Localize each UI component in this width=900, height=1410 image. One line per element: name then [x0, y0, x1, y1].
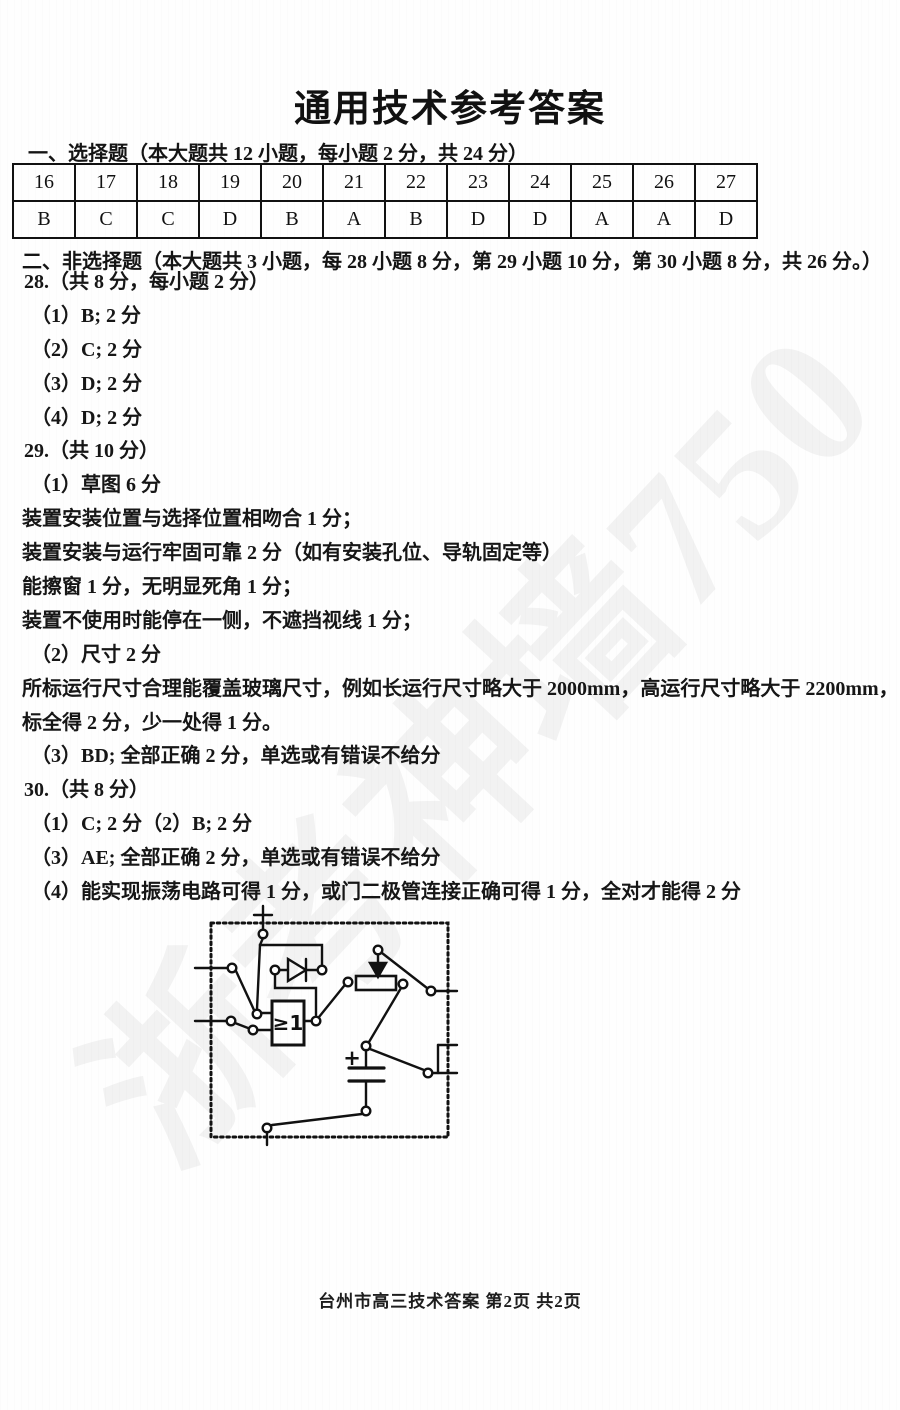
- wire-pot-to-cap: [369, 988, 401, 1042]
- table-answer-cell: C: [137, 201, 199, 238]
- q29-note: 装置不使用时能停在一侧，不遮挡视线 1 分；: [22, 605, 878, 639]
- wire-or-to-pot: [319, 986, 344, 1017]
- table-answer-cell: D: [447, 201, 509, 238]
- table-row-answers: B C C D B A B D D A A D: [13, 201, 757, 238]
- table-answer-cell: D: [199, 201, 261, 238]
- answer-table: 16 17 18 19 20 21 22 23 24 25 26 27 B C …: [12, 163, 758, 239]
- section1-heading: 一、选择题（本大题共 12 小题，每小题 2 分，共 24 分）: [28, 137, 528, 166]
- diode-icon: [271, 959, 327, 1015]
- q29-note: 能擦窗 1 分，无明显死角 1 分；: [22, 571, 878, 605]
- feedback-wire: [257, 945, 322, 1009]
- q29-item: （3）BD; 全部正确 2 分，单选或有错误不给分: [22, 740, 878, 774]
- q28-item: （2）C; 2 分: [22, 334, 878, 368]
- table-answer-cell: A: [633, 201, 695, 238]
- table-number-cell: 26: [633, 164, 695, 201]
- q28-item: （1）B; 2 分: [22, 300, 878, 334]
- table-answer-cell: D: [509, 201, 571, 238]
- table-number-cell: 19: [199, 164, 261, 201]
- table-answer-cell: B: [13, 201, 75, 238]
- circuit-diagram: ≥1: [180, 898, 480, 1160]
- answer-lines: 28.（共 8 分，每小题 2 分） （1）B; 2 分 （2）C; 2 分 （…: [22, 266, 878, 910]
- bottom-terminal: [263, 1107, 371, 1145]
- q28-item: （3）D; 2 分: [22, 368, 878, 402]
- q29-note: 所标运行尺寸合理能覆盖玻璃尺寸，例如长运行尺寸略大于 2000mm，高运行尺寸略…: [22, 673, 878, 707]
- table-answer-cell: C: [75, 201, 137, 238]
- right-output-bottom: [370, 1045, 457, 1077]
- table-number-cell: 18: [137, 164, 199, 201]
- q29-note: 装置安装位置与选择位置相吻合 1 分；: [22, 503, 878, 537]
- table-number-cell: 23: [447, 164, 509, 201]
- q30-item: （3）AE; 全部正确 2 分，单选或有错误不给分: [22, 842, 878, 876]
- left-input-bottom: [195, 1017, 272, 1035]
- table-number-cell: 25: [571, 164, 633, 201]
- table-number-cell: 21: [323, 164, 385, 201]
- q30-title: 30.（共 8 分）: [22, 774, 878, 808]
- q28-title: 28.（共 8 分，每小题 2 分）: [22, 266, 878, 300]
- table-answer-cell: D: [695, 201, 757, 238]
- q29-note: 装置安装与运行牢固可靠 2 分（如有安装孔位、导轨固定等）: [22, 537, 878, 571]
- table-number-cell: 20: [261, 164, 323, 201]
- table-number-cell: 17: [75, 164, 137, 201]
- scanned-answer-page: 浙考神墙750 通用技术参考答案 一、选择题（本大题共 12 小题，每小题 2 …: [0, 0, 900, 1410]
- top-terminal: [254, 906, 272, 945]
- potentiometer: [344, 946, 408, 990]
- q29-title: 29.（共 10 分）: [22, 435, 878, 469]
- table-answer-cell: B: [261, 201, 323, 238]
- q30-item: （1）C; 2 分（2）B; 2 分: [22, 808, 878, 842]
- table-answer-cell: B: [385, 201, 447, 238]
- q29-item: （2）尺寸 2 分: [22, 639, 878, 673]
- table-number-cell: 16: [13, 164, 75, 201]
- table-answer-cell: A: [571, 201, 633, 238]
- or-gate-label: ≥1: [273, 1011, 304, 1035]
- left-input-top: [195, 964, 254, 1010]
- q28-item: （4）D; 2 分: [22, 402, 878, 436]
- page-content: 通用技术参考答案 一、选择题（本大题共 12 小题，每小题 2 分，共 24 分…: [0, 0, 900, 1410]
- page-title: 通用技术参考答案: [0, 78, 900, 132]
- table-number-cell: 22: [385, 164, 447, 201]
- table-number-cell: 24: [509, 164, 571, 201]
- capacitor-plus-label: +: [343, 1046, 361, 1070]
- table-answer-cell: A: [323, 201, 385, 238]
- page-footer: 台州市高三技术答案 第2页 共2页: [0, 1287, 900, 1312]
- q29-note: 标全得 2 分，少一处得 1 分。: [22, 707, 878, 741]
- q29-item: （1）草图 6 分: [22, 469, 878, 503]
- table-row-numbers: 16 17 18 19 20 21 22 23 24 25 26 27: [13, 164, 757, 201]
- circuit-dashed-border: [211, 923, 448, 1137]
- table-number-cell: 27: [695, 164, 757, 201]
